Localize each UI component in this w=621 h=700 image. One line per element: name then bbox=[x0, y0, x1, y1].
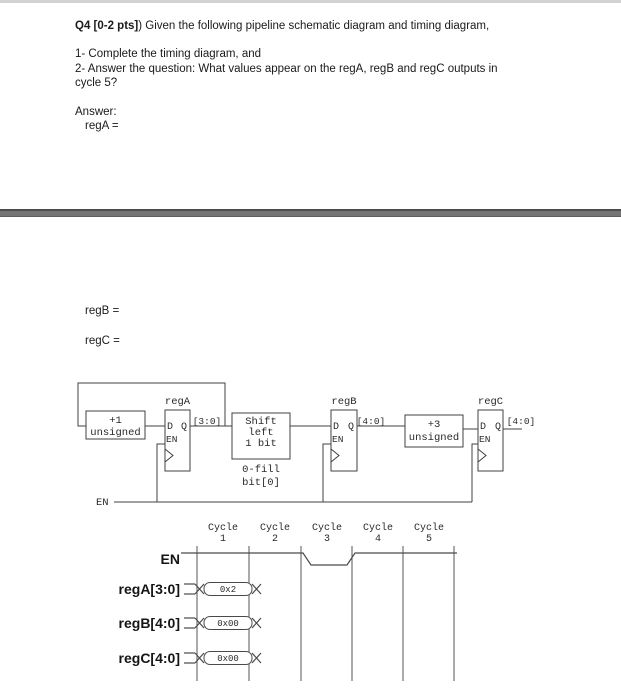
cycle-header-num: 5 bbox=[426, 534, 432, 545]
question-number: Q4 [0-2 pts] bbox=[75, 20, 138, 32]
rega-signal-label: regA[3:0] bbox=[119, 581, 180, 597]
en-riser-rega bbox=[157, 444, 165, 502]
regb-bus-label: [4:0] bbox=[357, 416, 386, 427]
add3-block-label1: +3 bbox=[428, 419, 441, 431]
regc-en-port: EN bbox=[479, 434, 490, 445]
cycle-header-word: Cycle bbox=[414, 522, 444, 534]
instruction-2-line2: cycle 5? bbox=[75, 77, 117, 90]
cycle-header-num: 3 bbox=[324, 534, 330, 545]
rega-d-port: D bbox=[167, 422, 173, 433]
regb-title: regB bbox=[331, 396, 356, 408]
regb-d-port: D bbox=[333, 422, 339, 433]
regb-answer-line: regB = bbox=[85, 305, 119, 318]
rega-answer-line: regA = bbox=[85, 120, 119, 133]
rega-clock-triangle-icon bbox=[165, 449, 173, 462]
cycle-header-num: 1 bbox=[220, 534, 226, 545]
regc-clock-triangle-icon bbox=[478, 449, 486, 462]
regb-cycle1-value: 0x00 bbox=[217, 619, 239, 629]
shift-block-note2: bit[0] bbox=[242, 477, 280, 489]
answer-label: Answer: bbox=[75, 106, 117, 119]
regc-cycle1-value: 0x00 bbox=[217, 654, 239, 664]
cycle-header-word: Cycle bbox=[363, 522, 393, 534]
cycle-header-word: Cycle bbox=[260, 522, 290, 534]
page-divider bbox=[0, 209, 621, 217]
rega-q-port: Q bbox=[181, 422, 187, 433]
instruction-1: 1- Complete the timing diagram, and bbox=[75, 48, 261, 61]
en-riser-regc bbox=[472, 444, 478, 502]
en-waveform bbox=[181, 553, 457, 565]
regc-signal-label: regC[4:0] bbox=[119, 650, 180, 666]
rega-bus-label: [3:0] bbox=[193, 416, 222, 427]
rega-title: regA bbox=[165, 396, 191, 408]
en-signal-label: EN bbox=[161, 551, 180, 567]
en-riser-regb bbox=[323, 444, 331, 502]
rega-cycle1-value: 0x2 bbox=[220, 585, 236, 595]
regb-en-port: EN bbox=[332, 434, 343, 445]
regc-answer-line: regC = bbox=[85, 335, 120, 348]
regb-clock-triangle-icon bbox=[331, 449, 339, 462]
en-net-label: EN bbox=[96, 497, 109, 509]
cycle-header-word: Cycle bbox=[312, 522, 342, 534]
cycle-header-num: 2 bbox=[272, 534, 278, 545]
pipeline-schematic-diagram: +1 unsigned regA D Q EN [3:0] Shift left… bbox=[70, 378, 545, 512]
regc-title: regC bbox=[478, 396, 503, 408]
shift-block-label3: 1 bit bbox=[245, 438, 277, 450]
exam-document: Q4 [0-2 pts]) Given the following pipeli… bbox=[0, 0, 621, 700]
question-line: Q4 [0-2 pts]) Given the following pipeli… bbox=[75, 20, 489, 33]
inc-block-label1: +1 bbox=[109, 415, 122, 427]
cycle-header-num: 4 bbox=[375, 534, 381, 545]
regc-q-port: Q bbox=[495, 422, 501, 433]
regb-q-port: Q bbox=[348, 422, 354, 433]
cycle-header-word: Cycle bbox=[208, 522, 238, 534]
add3-block-label2: unsigned bbox=[409, 432, 459, 444]
regc-bus-label: [4:0] bbox=[507, 416, 536, 427]
screenshot-top-edge bbox=[0, 0, 621, 3]
shift-block-note1: 0-fill bbox=[242, 464, 280, 476]
inc-block-label2: unsigned bbox=[90, 427, 140, 439]
question-text: ) Given the following pipeline schematic… bbox=[138, 20, 489, 32]
rega-en-port: EN bbox=[166, 434, 177, 445]
regb-signal-label: regB[4:0] bbox=[119, 615, 180, 631]
instruction-2-line1: 2- Answer the question: What values appe… bbox=[75, 63, 498, 76]
regc-d-port: D bbox=[480, 422, 486, 433]
timing-diagram: Cycle 1 Cycle 2 Cycle 3 Cycle 4 Cycle 5 … bbox=[95, 515, 470, 700]
